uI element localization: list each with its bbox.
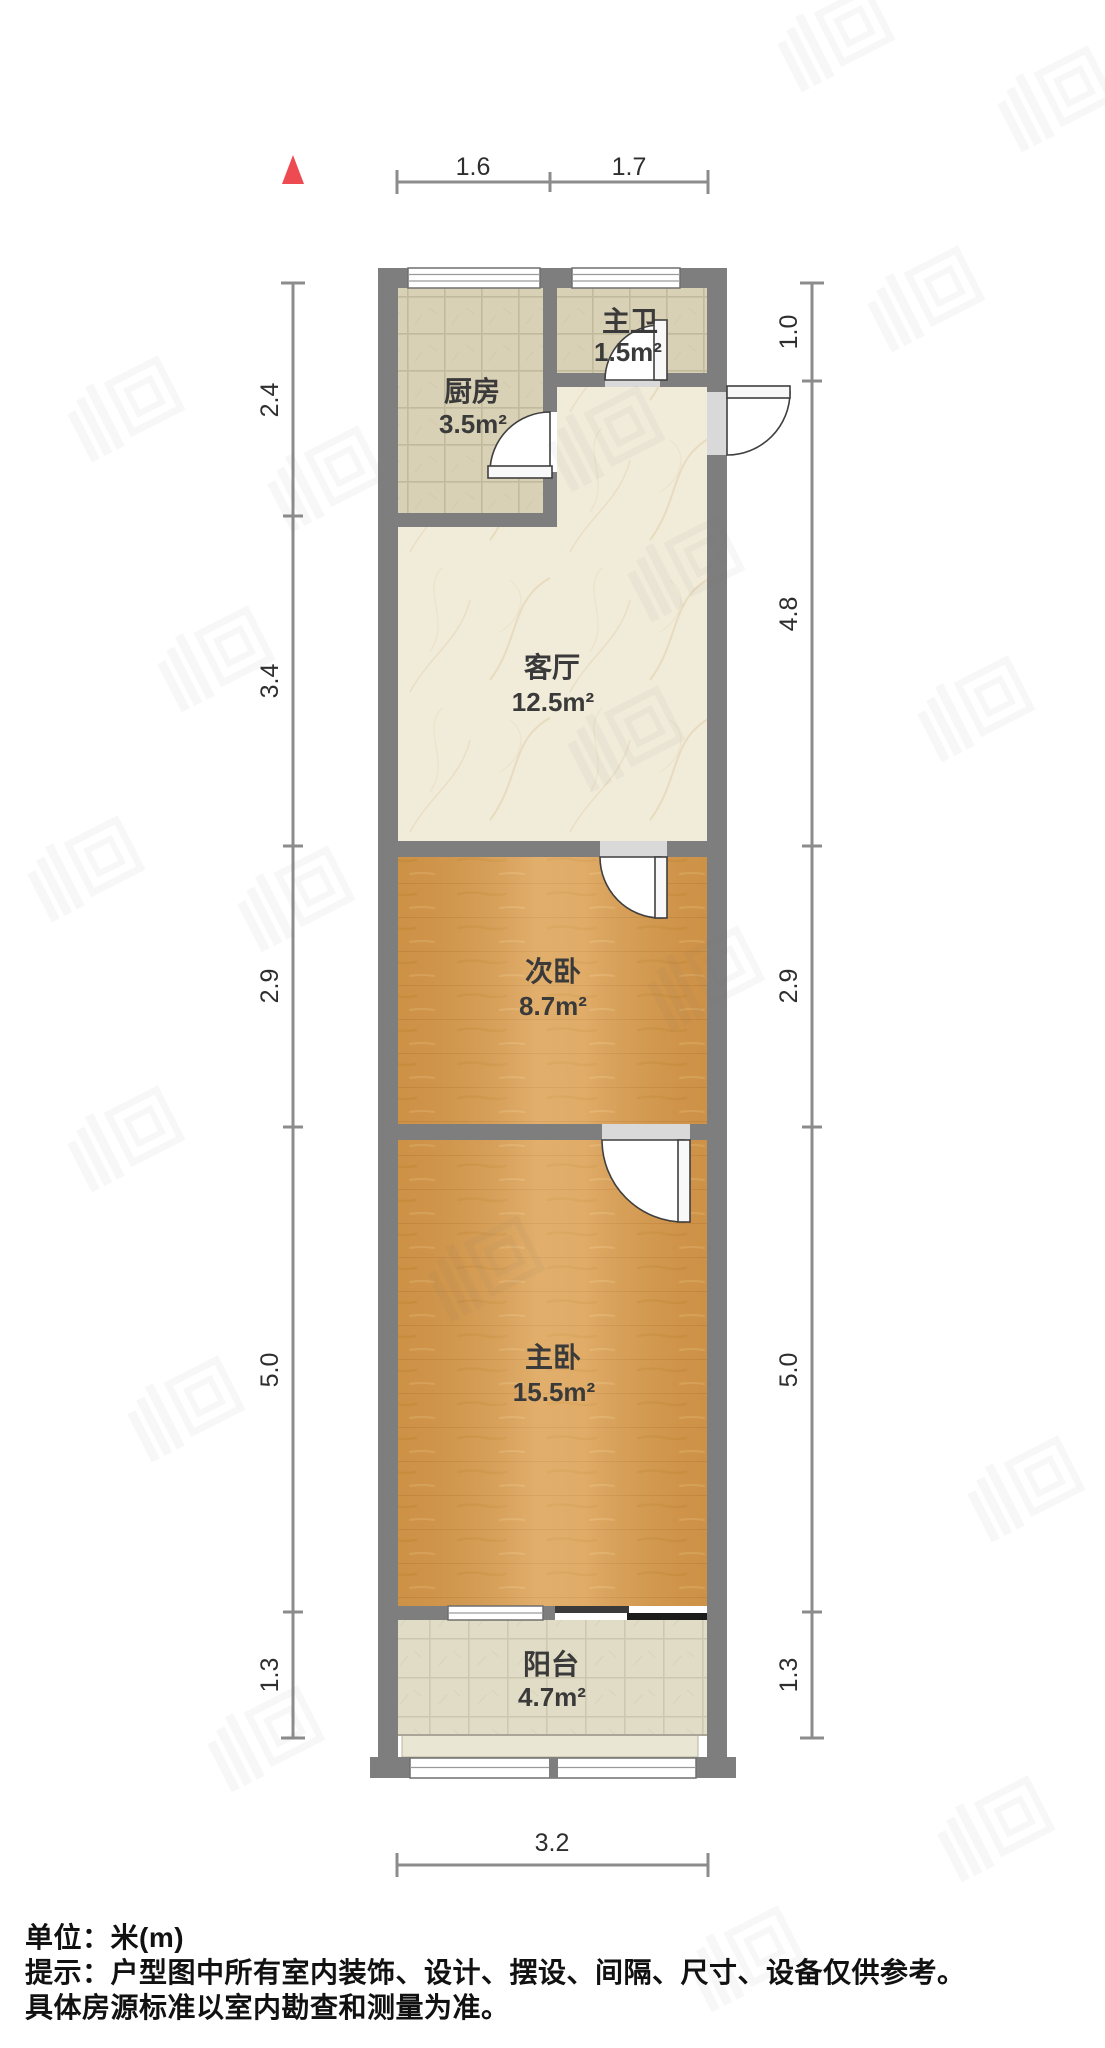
living-room-label: 客厅	[524, 651, 580, 683]
kitchen-label: 厨房	[444, 375, 500, 407]
watermark-icon	[60, 1083, 184, 1193]
dim-top-2: 1.7	[612, 153, 647, 181]
wall-bottom-right-stub	[696, 1757, 736, 1778]
dim-right-5: 1.3	[775, 1658, 803, 1693]
dim-top-1: 1.6	[456, 153, 491, 181]
floorplan-page: 主卫 1.5m² 厨房 3.5m² 客厅 12.5m² 次卧 8.7m² 主卧 …	[0, 0, 1105, 2048]
balcony-area: 4.7m²	[518, 1682, 586, 1712]
watermark-icon	[960, 1433, 1084, 1543]
watermark-icon	[260, 423, 384, 533]
watermark-icon	[910, 653, 1034, 763]
dim-right-4: 5.0	[775, 1353, 803, 1388]
balcony-divider-window	[448, 1606, 543, 1620]
wall-exterior-right-lower	[707, 455, 727, 1758]
balcony-label: 阳台	[523, 1648, 579, 1680]
balcony-sliding-door	[555, 1606, 707, 1620]
watermark-icon	[990, 43, 1105, 153]
bedroom2-door-threshold	[600, 841, 667, 857]
bedroom1-area: 15.5m²	[513, 1377, 596, 1407]
entry-door-leaf	[727, 386, 790, 398]
watermark-icon	[200, 1683, 324, 1793]
wall-bathroom-bottom-left	[557, 373, 605, 387]
dim-right-1: 1.0	[775, 315, 803, 350]
dim-bottom-1: 3.2	[535, 1829, 570, 1857]
dim-left-1: 2.4	[256, 383, 284, 418]
watermark-icon	[770, 0, 894, 92]
dim-right-3: 2.9	[775, 969, 803, 1004]
dim-left-2: 3.4	[256, 664, 284, 699]
bedroom2-door-leaf	[655, 857, 667, 918]
watermark-icon	[20, 813, 144, 923]
floorplan-drawing: 主卫 1.5m² 厨房 3.5m² 客厅 12.5m² 次卧 8.7m² 主卧 …	[0, 0, 1105, 2048]
wall-bedroom1-balcony-stub	[398, 1606, 448, 1620]
kitchen-area: 3.5m²	[439, 409, 507, 439]
dim-left-4: 5.0	[256, 1353, 284, 1388]
bathroom-area: 1.5m²	[594, 337, 662, 367]
dim-top	[397, 170, 708, 194]
dim-left-3: 2.9	[256, 969, 284, 1004]
footer-unit-line: 单位：米(m)	[25, 1920, 1075, 1955]
balcony-bottom-window	[410, 1758, 696, 1778]
wall-living-bedroom2-right	[667, 841, 707, 857]
sliding-door-panel-right	[627, 1613, 707, 1620]
dim-right	[800, 283, 824, 1738]
watermark-icon	[60, 353, 184, 463]
bedroom1-door-threshold	[602, 1124, 690, 1140]
bedroom2-label: 次卧	[525, 956, 581, 987]
wall-kitchen-bath-divider	[543, 288, 557, 412]
entry-door-threshold	[707, 392, 727, 455]
bedroom1-door-leaf	[678, 1140, 690, 1222]
wall-kitchen-divider-lower	[543, 472, 557, 527]
wall-bottom-left-stub	[370, 1757, 410, 1778]
watermark-icon	[120, 1353, 244, 1463]
sliding-door-panel-left	[555, 1606, 629, 1613]
window-mullion	[549, 1758, 558, 1778]
kitchen-door-leaf	[488, 466, 552, 478]
bedroom2-area: 8.7m²	[519, 991, 587, 1021]
watermark-icon	[930, 1773, 1054, 1883]
dim-left-5: 1.3	[256, 1658, 284, 1693]
entry-door	[727, 386, 790, 455]
footer-tip-line: 提示：户型图中所有室内装饰、设计、摆设、间隔、尺寸、设备仅供参考。	[25, 1955, 1075, 1990]
living-room-area: 12.5m²	[512, 687, 595, 717]
watermark-icon	[860, 243, 984, 353]
kitchen-window	[408, 268, 540, 288]
north-arrow-icon	[282, 155, 304, 184]
balcony-outer-strip	[402, 1735, 698, 1757]
dim-right-2: 4.8	[775, 597, 803, 632]
wall-exterior-left	[378, 288, 398, 1758]
wall-living-bedroom2-left	[398, 841, 600, 857]
wall-bedroom2-bedroom1-left	[398, 1124, 602, 1140]
footer-disclaimer-line: 具体房源标准以室内勘查和测量为准。	[25, 1990, 1075, 2025]
bathroom-label: 主卫	[602, 306, 658, 337]
wall-exterior-right-upper	[707, 288, 727, 392]
wall-bedroom1-balcony-post	[543, 1606, 555, 1620]
bedroom1-label: 主卧	[525, 1342, 581, 1373]
wall-bedroom2-bedroom1-right	[690, 1124, 707, 1140]
wall-kitchen-bottom	[398, 513, 543, 527]
footer-notes: 单位：米(m) 提示：户型图中所有室内装饰、设计、摆设、间隔、尺寸、设备仅供参考…	[25, 1920, 1075, 2025]
bathroom-window	[572, 268, 680, 288]
